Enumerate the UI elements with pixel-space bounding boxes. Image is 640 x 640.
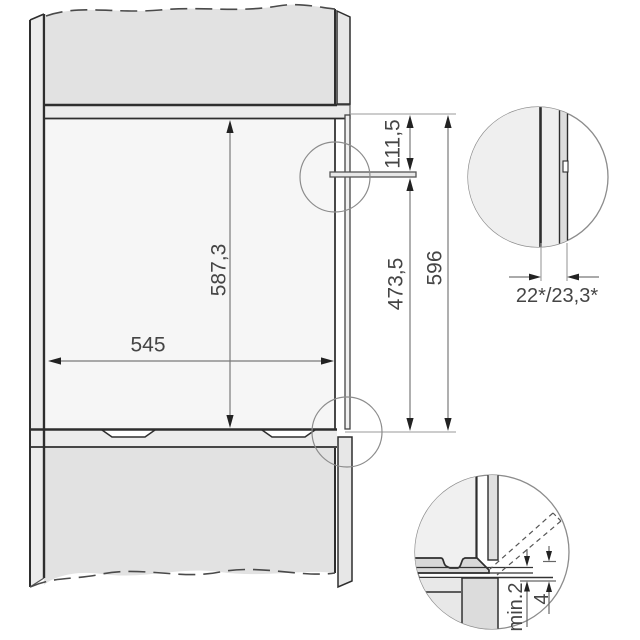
detail-min-clearance-label: min.2 <box>505 583 527 632</box>
front-plane-strip <box>345 115 350 429</box>
detail-bottom-board-front-block <box>462 578 498 632</box>
front-total-height-label: 596 <box>424 250 447 285</box>
top-cabinet-panel <box>46 5 335 104</box>
floor-foot-recess-right <box>262 430 315 437</box>
oven-niche <box>46 119 334 429</box>
detail-top-carcase-fill <box>466 105 559 249</box>
floor-foot-recess-left <box>102 430 155 437</box>
diagram-canvas: 587,3 545 111,5 473,5 596 <box>0 0 640 640</box>
niche-width-label: 545 <box>130 334 165 357</box>
detail-top-door-notch <box>563 161 568 172</box>
detail-top-door-strip <box>560 105 568 249</box>
detail-top-content <box>466 105 568 249</box>
bottom-cabinet-panel <box>44 448 335 585</box>
detail-bottom-door-strip <box>488 473 498 560</box>
lower-front-door-strip <box>338 437 352 587</box>
dimension-detail-top-gap: 22*/23,3* <box>509 243 599 307</box>
lower-section-height-label: 473,5 <box>385 258 408 311</box>
left-side-panel <box>30 14 44 587</box>
installation-diagram: 587,3 545 111,5 473,5 596 <box>0 0 640 640</box>
dimension-front-total-height: 596 <box>424 115 452 431</box>
detail-bottom-niche-fill <box>413 473 476 568</box>
dimension-lower-section-height: 473,5 <box>385 178 414 431</box>
control-panel-trim-strip <box>330 172 416 177</box>
detail-top-gap-label: 22*/23,3* <box>516 285 599 307</box>
detail-bottom-board-left <box>413 578 461 632</box>
detail-clearance-label: 4 <box>531 593 553 604</box>
panel-top-offset-label: 111,5 <box>382 119 405 168</box>
niche-height-label: 587,3 <box>208 244 231 297</box>
dimension-panel-top-offset: 111,5 <box>382 115 414 171</box>
upper-front-strip <box>337 11 350 104</box>
